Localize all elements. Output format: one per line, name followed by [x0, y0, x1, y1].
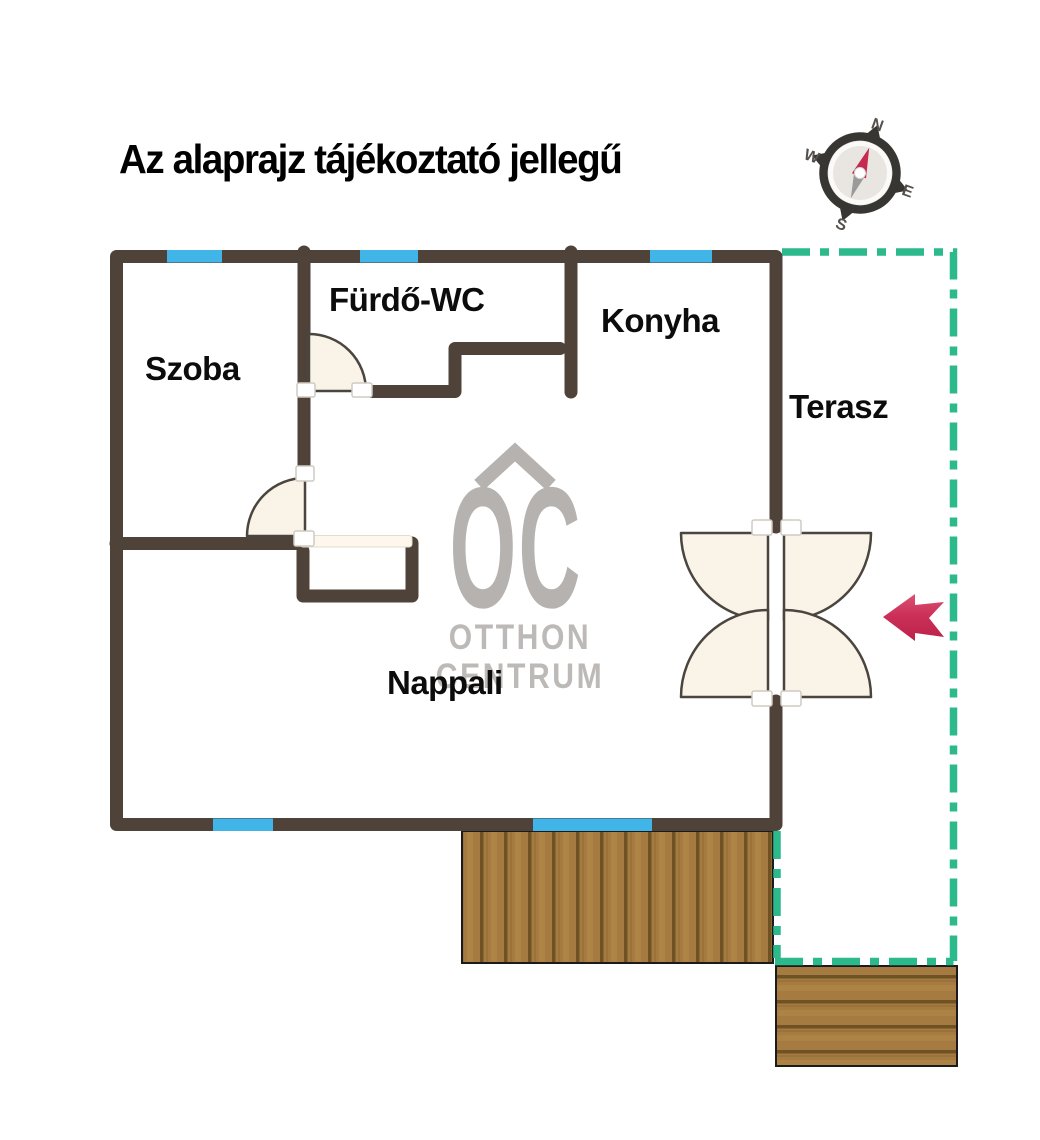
- door-frame-bracket: [781, 691, 801, 706]
- disclaimer-title: Az alaprajz tájékoztató jellegű: [119, 136, 621, 183]
- room-label-nappali: Nappali: [387, 664, 503, 702]
- door-frame-bracket: [297, 383, 315, 397]
- entrance-door-leaf-outer-top: [784, 533, 871, 620]
- room-label-terasz: Terasz: [789, 388, 888, 426]
- compass-w-label: W: [802, 146, 823, 167]
- door-frame-bracket: [781, 520, 801, 535]
- compass-icon: N E S W: [783, 98, 933, 253]
- deck-bottom-right: [776, 966, 957, 1066]
- door-frame-bracket: [294, 531, 314, 546]
- door-frame-bracket: [752, 691, 772, 706]
- watermark-logo: OC OTTHON CENTRUM: [436, 451, 604, 695]
- door-frame-bracket: [296, 466, 314, 481]
- entrance-arrow-icon: [883, 594, 944, 641]
- wall-bathroom-step: [372, 349, 560, 392]
- door-frame-bracket: [352, 383, 372, 397]
- door-hall: [247, 478, 305, 536]
- window-bathroom: [360, 250, 418, 263]
- logo-monogram: OC: [450, 451, 583, 643]
- room-label-furdo-wc: Fürdő-WC: [329, 281, 484, 319]
- entrance-door-leaf-inner-top: [681, 533, 768, 620]
- wall-closet-u: [303, 543, 412, 596]
- window-bottom-left: [213, 819, 273, 832]
- window-kitchen: [650, 250, 712, 263]
- passage-opening: [300, 536, 412, 548]
- logo-line1: OTTHON: [449, 617, 591, 657]
- entrance-door-leaf-outer-bottom: [784, 610, 871, 697]
- compass-s-label: S: [833, 215, 849, 235]
- room-label-szoba: Szoba: [145, 350, 240, 388]
- window-bottom-terrace: [533, 819, 652, 832]
- room-label-konyha: Konyha: [601, 302, 719, 340]
- deck-bottom-center: [462, 831, 773, 963]
- door-frame-bracket: [752, 520, 772, 535]
- floorplan-page: OC OTTHON CENTRUM: [0, 0, 1040, 1140]
- entrance-door-leaf-inner-bottom: [681, 610, 768, 697]
- window-szoba: [167, 250, 222, 263]
